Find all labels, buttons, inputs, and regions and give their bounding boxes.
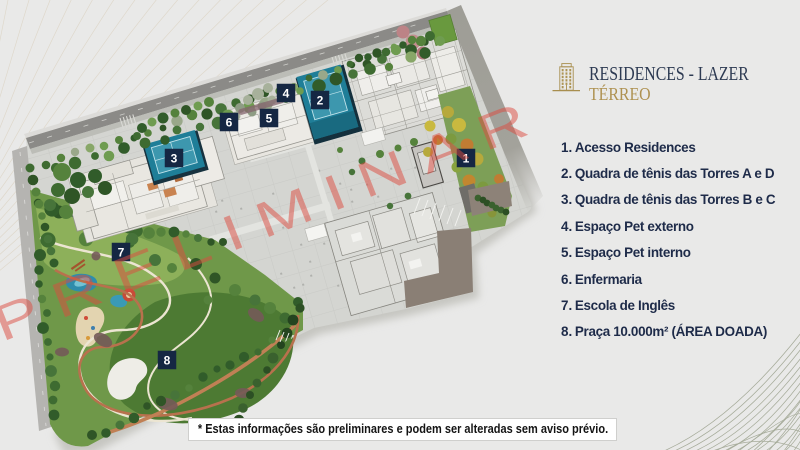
svg-text:5: 5 bbox=[266, 111, 273, 125]
svg-text:3: 3 bbox=[171, 151, 178, 165]
svg-text:8: 8 bbox=[164, 353, 171, 367]
svg-text:6: 6 bbox=[226, 115, 233, 129]
svg-text:2: 2 bbox=[317, 93, 324, 107]
svg-text:4: 4 bbox=[283, 86, 290, 100]
